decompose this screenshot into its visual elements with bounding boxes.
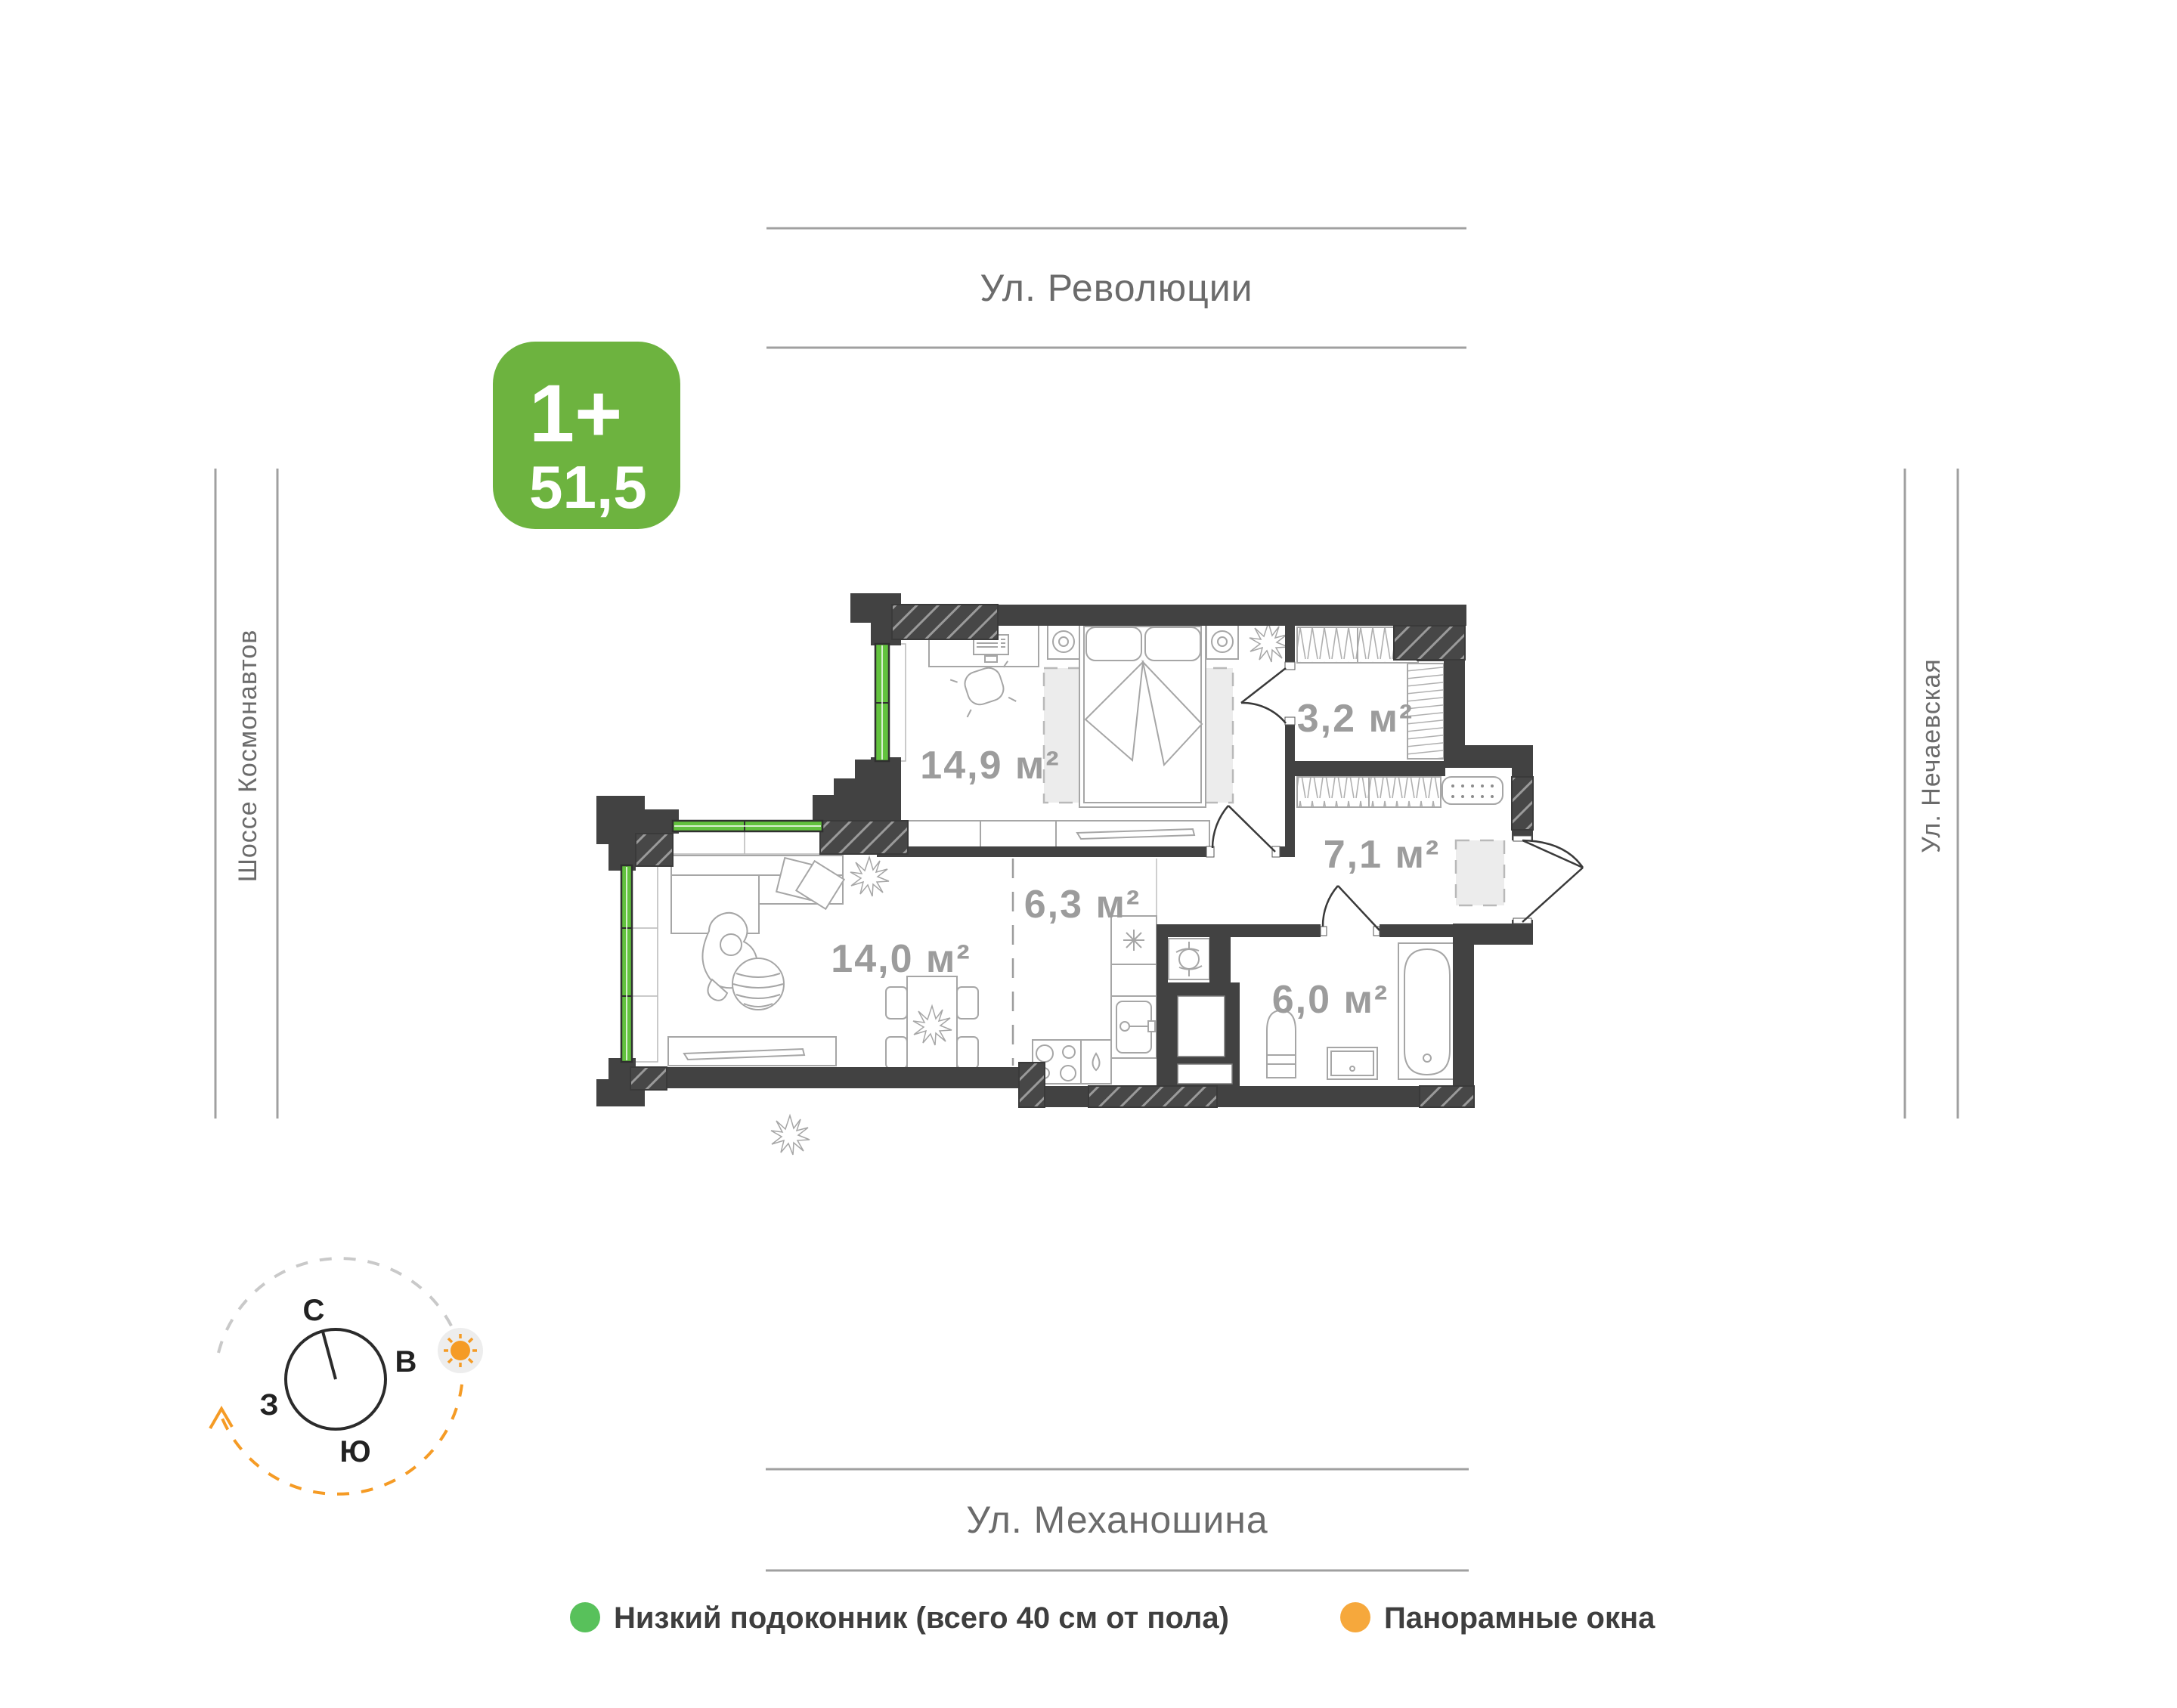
shaft-hole-1 bbox=[1178, 996, 1225, 1057]
room-kitchen: 6,3 м² bbox=[1024, 883, 1157, 1084]
hallway-bench bbox=[1442, 777, 1503, 804]
street-right-label: Ул. Нечаевская bbox=[1917, 658, 1946, 853]
street-top-label: Ул. Революции bbox=[980, 267, 1253, 309]
shaft-hole-2 bbox=[1178, 1064, 1232, 1084]
hallway-zone bbox=[1456, 840, 1504, 905]
compass-arrow bbox=[210, 1409, 232, 1428]
door-bathroom bbox=[1321, 886, 1380, 936]
bedroom-sideboard bbox=[905, 821, 1209, 848]
street-left: Шоссе Космонавтов bbox=[215, 469, 277, 1119]
legend-item-panoramic: Панорамные окна bbox=[1340, 1601, 1655, 1635]
door-entry bbox=[1513, 836, 1583, 924]
apartment-badge: 1+ 51,5 bbox=[493, 342, 680, 529]
bed bbox=[1079, 622, 1206, 807]
compass-north-label: С bbox=[303, 1294, 325, 1327]
pillow-right bbox=[1145, 627, 1200, 661]
street-left-label: Шоссе Космонавтов bbox=[234, 630, 262, 883]
compass-west-label: З bbox=[259, 1388, 278, 1422]
dining-set bbox=[886, 976, 978, 1075]
desk-chair bbox=[950, 661, 1020, 719]
bathroom-area-label: 6,0 м² bbox=[1272, 978, 1389, 1022]
street-top: Ул. Революции bbox=[766, 228, 1466, 348]
plant-icon-outside bbox=[771, 1115, 810, 1155]
plant-icon-bedroom bbox=[1250, 623, 1288, 662]
living-area-label: 14,0 м² bbox=[831, 937, 971, 981]
floorplan-canvas: Ул. Революции Ул. Механошина Шоссе Космо… bbox=[0, 0, 2177, 1708]
sofa bbox=[671, 856, 844, 933]
door-bedroom bbox=[1206, 806, 1280, 857]
kitchen-cabinet-mid bbox=[1111, 964, 1157, 996]
door-wardrobe bbox=[1241, 662, 1295, 725]
plant-icon-living bbox=[850, 857, 889, 896]
window-living-left bbox=[621, 865, 632, 1062]
badge-area-value: 51,5 bbox=[529, 453, 647, 521]
floorplan-page: Ул. Революции Ул. Механошина Шоссе Космо… bbox=[0, 0, 2177, 1708]
vent-fan bbox=[1169, 939, 1209, 979]
legend-label-panoramic: Панорамные окна bbox=[1384, 1601, 1655, 1635]
legend-item-low-sill: Низкий подоконник (всего 40 см от пола) bbox=[570, 1601, 1229, 1635]
wardrobe-area-label: 3,2 м² bbox=[1297, 697, 1414, 741]
bathtub bbox=[1398, 943, 1455, 1079]
chair-right-2 bbox=[957, 1037, 978, 1069]
compass-south-label: Ю bbox=[339, 1435, 370, 1468]
chair-right-1 bbox=[957, 987, 978, 1019]
badge-rooms-label: 1+ bbox=[529, 367, 622, 459]
legend-label-low-sill: Низкий подоконник (всего 40 см от пола) bbox=[614, 1601, 1229, 1635]
kitchen-area-label: 6,3 м² bbox=[1024, 883, 1141, 927]
legend: Низкий подоконник (всего 40 см от пола) … bbox=[570, 1601, 1655, 1635]
compass: С В З Ю bbox=[210, 1258, 483, 1494]
lamp-left-inner bbox=[1059, 637, 1068, 646]
kitchen-sink bbox=[1111, 996, 1157, 1058]
window-bedroom-left bbox=[875, 644, 889, 761]
legend-dot-green bbox=[570, 1602, 600, 1632]
legend-dot-orange bbox=[1340, 1602, 1370, 1632]
compass-east-label: В bbox=[395, 1345, 417, 1378]
street-bottom: Ул. Механошина bbox=[766, 1469, 1469, 1570]
bedroom-area-label: 14,9 м² bbox=[920, 744, 1060, 787]
asterisk-icon bbox=[1123, 930, 1144, 951]
kitchen-cabinet-light bbox=[1081, 1040, 1111, 1084]
chair-left-2 bbox=[886, 1037, 907, 1069]
pillow-left bbox=[1086, 627, 1141, 661]
room-living: 14,0 м² bbox=[668, 856, 978, 1075]
street-right: Ул. Нечаевская bbox=[1905, 469, 1958, 1119]
chair-left-1 bbox=[886, 987, 907, 1019]
lamp-right-inner bbox=[1218, 637, 1227, 646]
vanity bbox=[1327, 1047, 1377, 1079]
round-rug bbox=[732, 958, 784, 1010]
tv-stand bbox=[668, 1037, 836, 1066]
window-living-top bbox=[673, 821, 822, 831]
floorplan: 14,9 м² 3,2 м² 7,1 м² bbox=[596, 593, 1583, 1155]
street-bottom-label: Ул. Механошина bbox=[966, 1499, 1268, 1541]
person-head bbox=[720, 934, 742, 955]
hallway-area-label: 7,1 м² bbox=[1324, 833, 1441, 877]
